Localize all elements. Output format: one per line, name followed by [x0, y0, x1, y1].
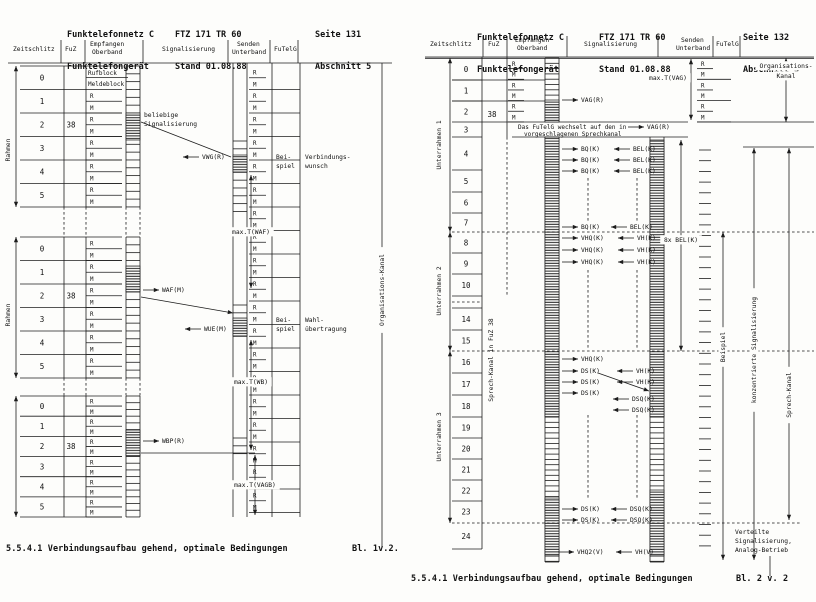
label: Empfangen — [515, 37, 549, 44]
rotated-label: Unterrahmen 2 — [436, 266, 443, 315]
svg-text:BEL(K): BEL(K) — [633, 168, 656, 175]
svg-text:R: R — [701, 62, 705, 68]
svg-text:Unterrahmen 1: Unterrahmen 1 — [436, 120, 443, 169]
label: 38 — [66, 292, 76, 301]
svg-text:M: M — [90, 491, 94, 497]
hatched-signal-block — [233, 155, 247, 172]
svg-text:konzentrierte Signalisierung: konzentrierte Signalisierung — [751, 297, 758, 403]
svg-text:M: M — [90, 153, 94, 159]
svg-text:BQ(K): BQ(K) — [581, 157, 600, 164]
svg-text:VAG(R): VAG(R) — [581, 97, 604, 104]
svg-text:R: R — [90, 420, 94, 426]
label: FuTelG — [274, 46, 297, 53]
svg-text:M: M — [90, 324, 94, 330]
svg-text:R: R — [90, 312, 94, 318]
svg-text:Oberband: Oberband — [517, 45, 548, 52]
signal-annotation-waf-m-: WAF(M) — [143, 287, 185, 294]
svg-text:R: R — [253, 141, 257, 147]
svg-text:5: 5 — [40, 191, 45, 200]
svg-text:WAF(M): WAF(M) — [162, 287, 185, 294]
svg-text:Rahmen: Rahmen — [5, 138, 12, 161]
svg-text:38: 38 — [66, 121, 76, 130]
label: Zeitschlitz — [430, 41, 472, 48]
cell-grid — [545, 58, 559, 95]
svg-text:Zeitschlitz: Zeitschlitz — [13, 46, 55, 53]
span-arrow — [721, 232, 725, 560]
svg-text:M: M — [253, 388, 257, 394]
svg-text:1: 1 — [40, 422, 45, 431]
svg-text:Signalisierung: Signalisierung — [144, 121, 197, 128]
svg-text:R: R — [90, 480, 94, 486]
signal-annotation-vh-k-: VH(K) — [617, 368, 655, 375]
hatched-signal-block — [126, 430, 140, 456]
svg-text:19: 19 — [461, 424, 470, 433]
svg-text:R: R — [253, 212, 257, 218]
svg-text:Verbindungs-: Verbindungs- — [305, 154, 351, 161]
svg-text:2: 2 — [40, 442, 45, 451]
svg-text:R: R — [90, 242, 94, 248]
span-arrow — [689, 59, 693, 120]
svg-text:Empfangen: Empfangen — [90, 41, 124, 48]
svg-text:R: R — [701, 83, 705, 89]
signal-annotation-ds-k-: DS(K) — [562, 390, 600, 397]
svg-text:M: M — [253, 82, 257, 88]
label: Organisations- — [755, 61, 816, 70]
svg-text:R: R — [253, 353, 257, 359]
left-sheet-label: Bl. 1v.2. — [352, 544, 399, 554]
rotated-label: konzentrierte Signalisierung — [750, 288, 759, 412]
svg-text:R: R — [90, 501, 94, 507]
svg-text:10: 10 — [461, 281, 471, 290]
svg-text:M: M — [253, 341, 257, 347]
svg-text:R: R — [253, 306, 257, 312]
svg-text:R: R — [90, 336, 94, 342]
svg-text:15: 15 — [461, 337, 470, 346]
svg-text:VH(K): VH(K) — [637, 247, 656, 254]
label: 38 — [66, 442, 76, 451]
svg-text:M: M — [90, 347, 94, 353]
signal-annotation-dsq-k-: DSQ(K) — [613, 396, 655, 403]
label: wunsch — [305, 163, 328, 170]
label: Signalisierung, — [735, 538, 792, 545]
svg-text:VH(K): VH(K) — [636, 379, 655, 386]
cell-grid — [650, 417, 664, 486]
span-arrow — [448, 232, 452, 351]
5: RMRMRMRMRM — [86, 94, 122, 207]
svg-text:R: R — [90, 118, 94, 124]
svg-text:2: 2 — [40, 291, 45, 300]
signal-annotation-wue-m-: WUE(M) — [185, 326, 227, 333]
svg-text:M: M — [90, 371, 94, 377]
6: RMRMRMRMRMRM — [86, 400, 122, 517]
svg-text:3: 3 — [40, 462, 45, 471]
svg-text:M: M — [253, 176, 257, 182]
hatched-signal-block — [126, 113, 140, 140]
svg-text:22: 22 — [461, 487, 470, 496]
svg-text:R: R — [253, 165, 257, 171]
svg-text:FuZ: FuZ — [488, 41, 500, 48]
rotated-label: Rahmen — [5, 303, 12, 326]
svg-text:VHQ(K): VHQ(K) — [581, 235, 604, 242]
svg-text:M: M — [90, 106, 94, 112]
rotated-label: Unterrahmen 1 — [436, 120, 443, 169]
rotated-label: Rahmen — [5, 138, 12, 161]
svg-text:R: R — [90, 188, 94, 194]
svg-text:DS(K): DS(K) — [581, 379, 600, 386]
svg-text:Signalisierung: Signalisierung — [584, 41, 637, 48]
svg-text:BQ(K): BQ(K) — [581, 146, 600, 153]
3: RMRMRM — [508, 62, 524, 122]
signal-annotation-wbp-r-: WBP(R) — [143, 438, 185, 445]
svg-text:BEL(K): BEL(K) — [633, 157, 656, 164]
svg-text:Wahl-: Wahl- — [305, 317, 324, 324]
label: spiel — [276, 163, 295, 170]
label: FuZ — [488, 41, 500, 48]
span-arrow — [787, 148, 791, 520]
svg-text:R: R — [90, 359, 94, 365]
svg-text:Organisations-: Organisations- — [759, 63, 812, 70]
svg-text:übertragung: übertragung — [305, 326, 347, 333]
svg-text:Sprech-Kanal: Sprech-Kanal — [786, 372, 793, 418]
svg-text:spiel: spiel — [276, 326, 295, 333]
cell-grid — [545, 417, 559, 497]
svg-text:M: M — [253, 106, 257, 112]
svg-text:M: M — [253, 294, 257, 300]
svg-text:DS(K): DS(K) — [581, 390, 600, 397]
cell-grid — [233, 141, 247, 211]
svg-text:VH(K): VH(K) — [637, 259, 656, 266]
svg-text:Zeitschlitz: Zeitschlitz — [430, 41, 472, 48]
svg-text:M: M — [253, 129, 257, 135]
svg-text:M: M — [512, 73, 516, 79]
svg-text:R: R — [90, 265, 94, 271]
svg-text:BEL(K): BEL(K) — [630, 224, 653, 231]
svg-text:VHQ(K): VHQ(K) — [581, 356, 604, 363]
rotated-label: Unterrahmen 3 — [436, 412, 443, 461]
svg-text:R: R — [90, 460, 94, 466]
svg-text:M: M — [701, 73, 705, 79]
cell-grid — [545, 556, 559, 561]
svg-text:4: 4 — [40, 482, 45, 491]
3: RMRMRM — [697, 62, 731, 122]
svg-text:3: 3 — [464, 126, 469, 135]
svg-text:Oberband: Oberband — [92, 49, 123, 56]
hatched-signal-block — [545, 498, 559, 556]
svg-text:R: R — [253, 188, 257, 194]
svg-text:M: M — [253, 200, 257, 206]
svg-text:DSQ(K): DSQ(K) — [632, 407, 655, 414]
signal-annotation-vh-k-: VH(K) — [618, 259, 656, 266]
svg-text:VWG(R): VWG(R) — [202, 154, 225, 161]
label: vorgeschlagenen Sprechkanal — [524, 131, 622, 138]
svg-text:M: M — [512, 115, 516, 121]
svg-text:VH(K): VH(K) — [637, 235, 656, 242]
signal-annotation-bq-k-: BQ(K) — [562, 168, 600, 175]
cell-grid — [699, 150, 711, 546]
cell-grid — [126, 396, 140, 517]
svg-text:M: M — [512, 94, 516, 100]
svg-text:2: 2 — [40, 120, 45, 129]
svg-text:M: M — [90, 200, 94, 206]
label: Unterband — [676, 45, 710, 52]
svg-text:R: R — [90, 400, 94, 406]
svg-text:Senden: Senden — [681, 37, 704, 44]
signal-annotation-dsq-k-: DSQ(K) — [611, 506, 653, 513]
svg-text:23: 23 — [461, 508, 470, 517]
label: Das FuTelG wechselt auf den in — [518, 124, 627, 131]
hatched-signal-block — [126, 266, 140, 292]
scanned-document-page: Funktelefonnetz C Funktelefongerät FTZ 1… — [0, 0, 816, 602]
label: Oberband — [92, 49, 123, 56]
svg-text:max.T(WB): max.T(WB) — [234, 379, 268, 386]
signal-annotation-bq-k-: BQ(K) — [562, 146, 600, 153]
signal-annotation-vag-r-: VAG(R) — [628, 124, 670, 131]
svg-text:wunsch: wunsch — [305, 163, 328, 170]
svg-text:8: 8 — [464, 239, 469, 248]
svg-text:38: 38 — [487, 110, 497, 119]
label: FuTelG — [716, 41, 739, 48]
label: übertragung — [305, 326, 347, 333]
svg-text:M: M — [90, 410, 94, 416]
svg-text:16: 16 — [461, 358, 471, 367]
svg-text:M: M — [253, 411, 257, 417]
svg-text:max.T(VAG): max.T(VAG) — [649, 75, 687, 82]
label: Senden — [237, 41, 260, 48]
signal-annotation-vhq-k-: VHQ(K) — [562, 235, 604, 242]
left-figure-caption: 5.5.4.1 Verbindungsaufbau gehend, optima… — [6, 544, 288, 554]
rotated-label: Organisations-Kanal — [378, 247, 387, 333]
label: Zeitschlitz — [13, 46, 55, 53]
6: RMRMRMRMRMRM — [86, 242, 122, 378]
signal-annotation-vhq-k-: VHQ(K) — [562, 247, 604, 254]
svg-text:8x BEL(K): 8x BEL(K) — [664, 237, 698, 244]
svg-text:Unterband: Unterband — [232, 49, 266, 56]
svg-text:BEL(K): BEL(K) — [633, 146, 656, 153]
svg-text:Unterrahmen 2: Unterrahmen 2 — [436, 266, 443, 315]
svg-text:R: R — [90, 440, 94, 446]
svg-text:R: R — [253, 94, 257, 100]
svg-text:4: 4 — [464, 150, 469, 159]
signal-annotation-bel-k-: BEL(K) — [614, 146, 656, 153]
svg-text:Analog-Betrieb: Analog-Betrieb — [735, 547, 788, 554]
label: Meldeblock — [88, 81, 125, 88]
signal-annotation-bel-k-: BEL(K) — [611, 224, 653, 231]
svg-text:max.T(VAGB): max.T(VAGB) — [234, 482, 276, 489]
rotated-label: Sprech-Kanal — [785, 367, 794, 423]
svg-text:M: M — [90, 176, 94, 182]
svg-text:M: M — [90, 253, 94, 259]
label: Senden — [681, 37, 704, 44]
svg-text:R: R — [512, 62, 516, 68]
svg-text:VHQ(K): VHQ(K) — [581, 247, 604, 254]
svg-text:vorgeschlagenen Sprechkanal: vorgeschlagenen Sprechkanal — [524, 131, 622, 138]
svg-text:R: R — [253, 400, 257, 406]
svg-text:Meldeblock: Meldeblock — [88, 81, 125, 88]
connector-line — [141, 297, 233, 315]
svg-text:Rahmen: Rahmen — [5, 303, 12, 326]
svg-text:VAG(R): VAG(R) — [647, 124, 670, 131]
hatched-signal-block — [650, 140, 664, 417]
timing-diagram: ZeitschlitzFuZEmpfangenOberbandSignalisi… — [0, 0, 816, 602]
label: Analog-Betrieb — [735, 547, 788, 554]
span-arrow — [448, 58, 452, 232]
svg-text:2: 2 — [464, 108, 469, 117]
label: Wahl- — [305, 317, 324, 324]
svg-text:R: R — [253, 447, 257, 453]
svg-text:M: M — [253, 270, 257, 276]
label: 8x BEL(K) — [660, 235, 702, 244]
svg-text:M: M — [90, 277, 94, 283]
label: Kanal — [773, 71, 799, 80]
span-arrow — [14, 66, 18, 207]
svg-text:DSQ(K): DSQ(K) — [630, 506, 653, 513]
label: FuZ — [65, 46, 77, 53]
svg-text:Das FuTelG wechselt auf den in: Das FuTelG wechselt auf den in — [518, 124, 627, 131]
svg-text:M: M — [701, 94, 705, 100]
svg-text:M: M — [701, 115, 705, 121]
label: Signalisierung — [144, 121, 197, 128]
label: max.T(WAF) — [228, 227, 274, 236]
slot-numbers: 0123456789101415161718192021222324 — [461, 65, 471, 541]
svg-text:Unterrahmen 3: Unterrahmen 3 — [436, 412, 443, 461]
svg-text:20: 20 — [461, 445, 471, 454]
label: max.T(VAGB) — [230, 480, 279, 489]
svg-text:VHQ2(V): VHQ2(V) — [577, 549, 604, 556]
label: 38 — [66, 121, 76, 130]
svg-text:VH(K): VH(K) — [636, 368, 655, 375]
svg-text:5: 5 — [40, 503, 45, 512]
signal-annotation-vhq-k-: VHQ(K) — [562, 356, 604, 363]
svg-text:WUE(M): WUE(M) — [204, 326, 227, 333]
svg-text:4: 4 — [40, 167, 45, 176]
label: max.T(VAG) — [645, 73, 691, 82]
span-arrow — [14, 237, 18, 378]
svg-text:FuTelG: FuTelG — [716, 41, 739, 48]
svg-text:VH(V): VH(V) — [635, 549, 654, 556]
svg-text:6: 6 — [464, 199, 469, 208]
label: Signalisierung — [584, 41, 637, 48]
right-sheet-label: Bl. 2 v. 2 — [736, 574, 788, 584]
svg-text:Senden: Senden — [237, 41, 260, 48]
svg-text:WBP(R): WBP(R) — [162, 438, 185, 445]
signal-annotation-bel-k-: BEL(K) — [614, 157, 656, 164]
svg-text:R: R — [512, 105, 516, 111]
label: 38 — [487, 110, 497, 119]
rotated-label: Sprech-Kanal in FuZ 38 — [488, 318, 495, 402]
svg-text:Verteilte: Verteilte — [735, 529, 769, 536]
label: Verteilte — [735, 529, 769, 536]
svg-text:9: 9 — [464, 260, 469, 269]
svg-text:M: M — [90, 470, 94, 476]
svg-text:Bei-: Bei- — [276, 317, 291, 324]
svg-text:R: R — [253, 423, 257, 429]
signal-annotation-vag-r-: VAG(R) — [562, 97, 604, 104]
label: Rufblock — [88, 70, 117, 77]
svg-text:spiel: spiel — [276, 163, 295, 170]
label: Signalisierung — [162, 46, 215, 53]
signal-annotation-vh-k-: VH(K) — [618, 247, 656, 254]
label: max.T(WB) — [230, 377, 272, 386]
svg-text:R: R — [90, 141, 94, 147]
signal-annotation-bel-k-: BEL(K) — [614, 168, 656, 175]
svg-text:Bei-: Bei- — [276, 154, 291, 161]
signal-annotation-vhq-k-: VHQ(K) — [562, 259, 604, 266]
svg-text:R: R — [90, 94, 94, 100]
signal-annotation-dsq-k-: DSQ(K) — [613, 407, 655, 414]
svg-text:5: 5 — [40, 362, 45, 371]
cell-grid — [233, 438, 247, 454]
signal-annotation-ds-k-: DS(K) — [562, 506, 600, 513]
label: beliebige — [144, 112, 178, 119]
label: Empfangen — [90, 41, 124, 48]
cell-grid — [650, 556, 664, 561]
svg-text:0: 0 — [40, 402, 45, 411]
svg-text:Rufblock: Rufblock — [88, 70, 117, 77]
signal-annotation-vh-k-: VH(K) — [617, 379, 655, 386]
svg-text:BQ(K): BQ(K) — [581, 224, 600, 231]
svg-text:M: M — [90, 300, 94, 306]
svg-text:1: 1 — [464, 87, 469, 96]
svg-text:Sprech-Kanal in FuZ 38: Sprech-Kanal in FuZ 38 — [488, 318, 495, 402]
signal-annotation-vhq2-v-: VHQ2(V) — [558, 549, 604, 556]
rotated-label: Beispiel — [719, 327, 728, 367]
signal-annotation-bq-k-: BQ(K) — [562, 157, 600, 164]
svg-text:BQ(K): BQ(K) — [581, 168, 600, 175]
cell-grid — [126, 237, 140, 378]
signal-annotation-ds-k-: DS(K) — [562, 379, 600, 386]
svg-text:0: 0 — [40, 73, 45, 82]
svg-text:M: M — [253, 435, 257, 441]
signal-annotation-vwg-r-: VWG(R) — [183, 154, 225, 161]
svg-text:24: 24 — [461, 532, 471, 541]
svg-text:Kanal: Kanal — [777, 73, 796, 80]
label: Oberband — [517, 45, 548, 52]
svg-text:Empfangen: Empfangen — [515, 37, 549, 44]
span-arrow — [679, 140, 683, 351]
svg-text:DS(K): DS(K) — [581, 368, 600, 375]
svg-text:DSQ(K): DSQ(K) — [632, 396, 655, 403]
svg-text:FuTelG: FuTelG — [274, 46, 297, 53]
svg-text:3: 3 — [40, 144, 45, 153]
svg-text:R: R — [253, 282, 257, 288]
svg-text:3: 3 — [40, 315, 45, 324]
signal-annotation-bq-k-: BQ(K) — [562, 224, 600, 231]
svg-text:38: 38 — [66, 442, 76, 451]
svg-text:M: M — [90, 430, 94, 436]
span-arrow — [448, 351, 452, 523]
svg-text:R: R — [90, 289, 94, 295]
svg-text:Signalisierung,: Signalisierung, — [735, 538, 792, 545]
right-figure-caption: 5.5.4.1 Verbindungsaufbau gehend, optima… — [411, 574, 693, 584]
svg-text:Unterband: Unterband — [676, 45, 710, 52]
svg-text:VHQ(K): VHQ(K) — [581, 259, 604, 266]
svg-text:R: R — [253, 118, 257, 124]
svg-text:4: 4 — [40, 338, 45, 347]
label: Bei- — [276, 317, 291, 324]
svg-text:M: M — [253, 317, 257, 323]
hatched-signal-block — [545, 137, 559, 417]
svg-text:M: M — [90, 450, 94, 456]
signal-annotation-vh-k-: VH(K) — [618, 235, 656, 242]
svg-text:21: 21 — [461, 466, 470, 475]
label: spiel — [276, 326, 295, 333]
svg-text:R: R — [90, 165, 94, 171]
svg-text:17: 17 — [461, 380, 470, 389]
svg-text:38: 38 — [66, 292, 76, 301]
svg-text:DS(K): DS(K) — [581, 506, 600, 513]
svg-text:M: M — [90, 511, 94, 517]
svg-text:R: R — [253, 329, 257, 335]
